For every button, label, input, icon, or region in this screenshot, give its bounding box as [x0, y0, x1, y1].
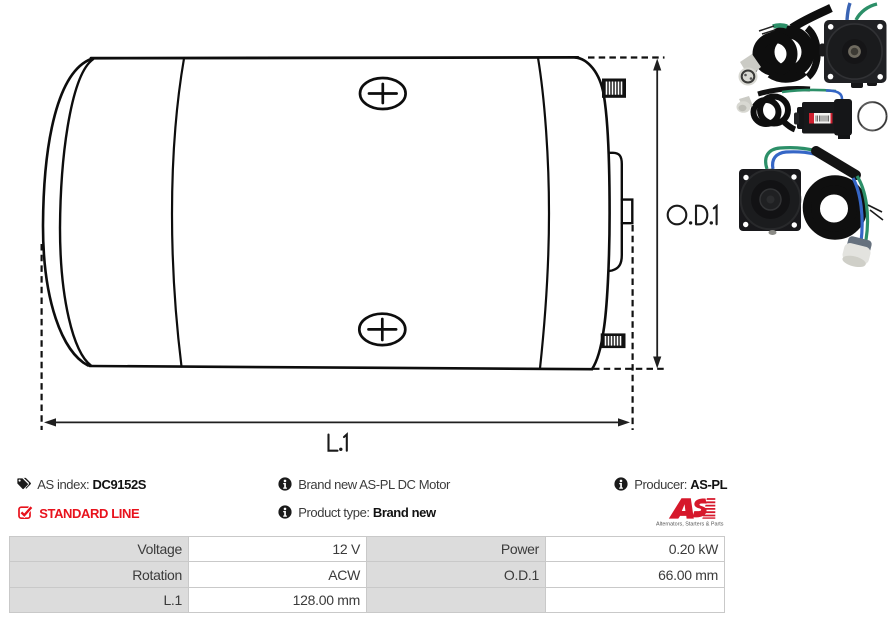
- svg-text:Alternators, Starters & Parts: Alternators, Starters & Parts: [656, 522, 724, 528]
